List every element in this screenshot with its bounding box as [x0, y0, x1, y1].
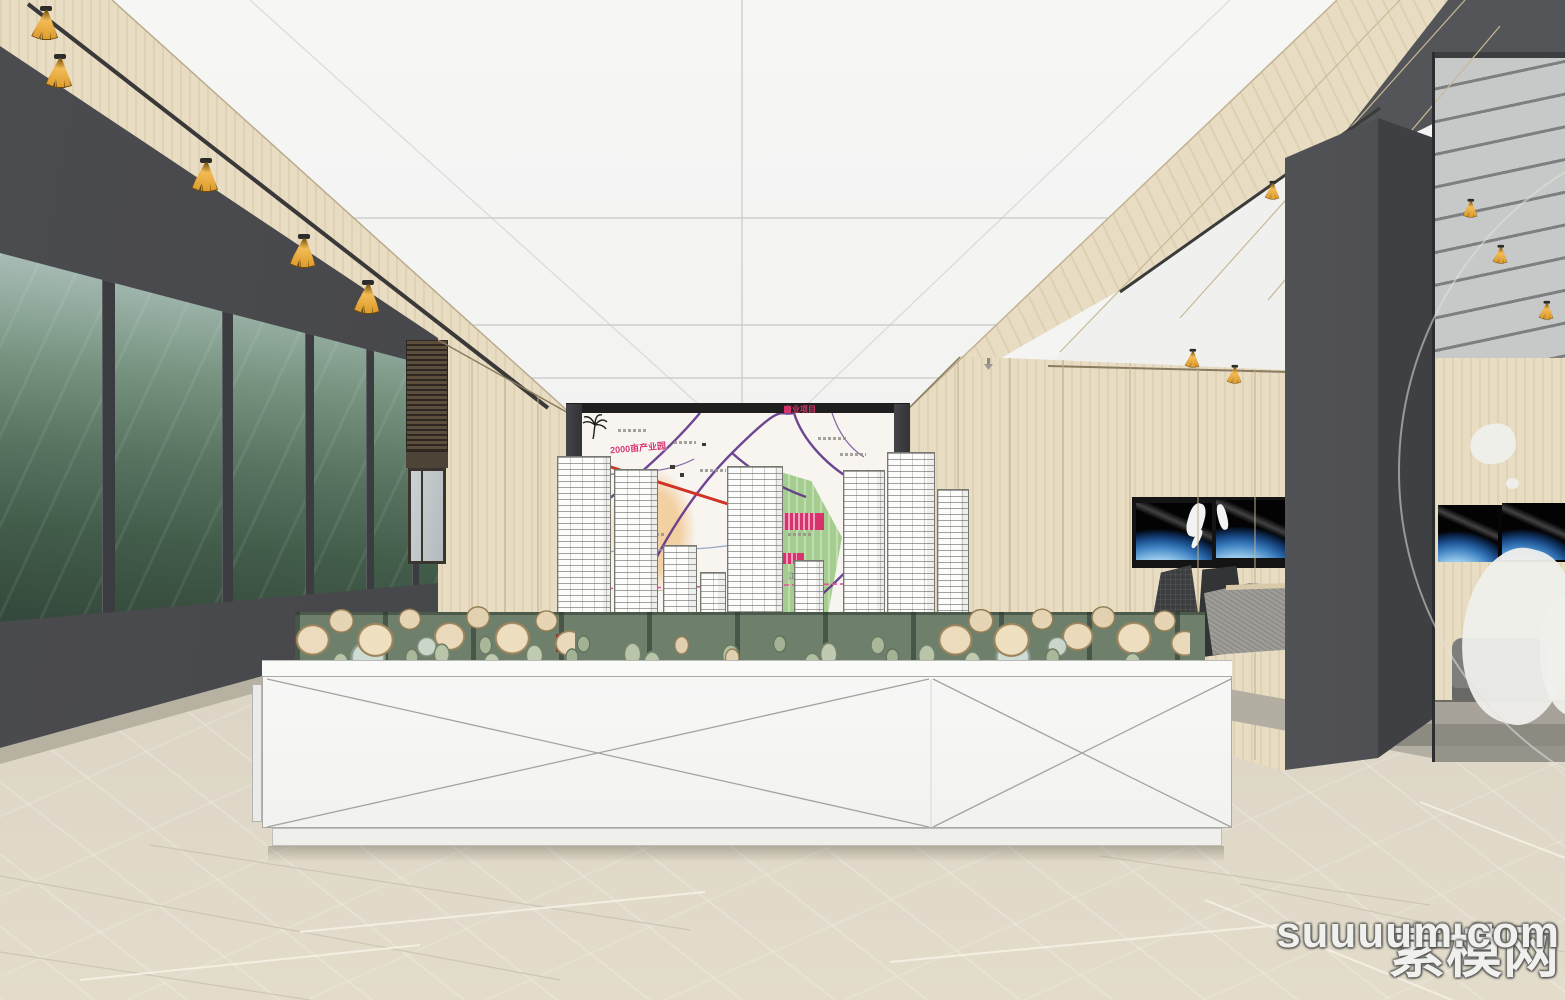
spotlight-icon — [288, 236, 322, 272]
spotlight-icon — [30, 8, 64, 44]
spotlight-icon — [190, 160, 224, 196]
space-earth-screen-2 — [1216, 500, 1288, 558]
podium-top-rim — [262, 660, 1232, 676]
spotlight-icon — [1492, 246, 1511, 266]
wood-louver-panel — [406, 340, 448, 452]
side-window — [408, 468, 446, 564]
glass-partition-frame — [1432, 52, 1435, 762]
video-wall-mullion — [366, 349, 374, 589]
podium-cross-bracing — [263, 677, 1233, 829]
podium-front-face — [262, 676, 1232, 828]
exhibition-hall-render: 产业项目 2000亩产业园 江苏 — [0, 0, 1565, 1000]
spotlight-icon — [1184, 350, 1203, 370]
spotlight-icon — [1538, 302, 1557, 322]
map-building-mark — [670, 465, 675, 469]
map-small-text — [788, 533, 812, 536]
legend-label: 产业项目 — [784, 404, 816, 415]
map-small-text — [840, 453, 866, 456]
video-wall-mullion — [102, 280, 115, 613]
glass-base-band-lower — [1396, 724, 1565, 746]
glass-room-ceiling-edge — [1434, 52, 1565, 58]
spotlight-icon — [1462, 200, 1481, 220]
podium-base — [272, 828, 1222, 846]
world-map-decal-island — [1506, 478, 1519, 489]
spotlight-icon — [44, 56, 78, 92]
spotlight-icon — [1226, 366, 1245, 386]
map-small-text — [700, 469, 726, 472]
window-mullion — [421, 471, 423, 561]
video-wall-mullion — [305, 333, 314, 595]
glass-room-earth-screen-1 — [1438, 505, 1498, 562]
stone-reception-desk — [1204, 583, 1292, 655]
podium-shadow — [268, 846, 1224, 862]
podium-left-bevel — [252, 684, 262, 822]
video-wall-mullion — [222, 311, 233, 602]
louver-valance — [406, 452, 448, 468]
map-building-mark — [702, 443, 706, 446]
map-small-text — [674, 441, 696, 444]
spotlight-icon — [352, 282, 386, 318]
map-small-text — [818, 437, 848, 440]
sprinkler-icon — [984, 358, 994, 370]
spotlight-icon — [1264, 182, 1283, 202]
palm-tree-icon — [582, 413, 608, 439]
astronaut-arm — [1215, 503, 1230, 530]
map-small-text — [618, 429, 648, 432]
map-building-mark — [680, 473, 684, 477]
space-earth-screen-1 — [1136, 503, 1212, 560]
